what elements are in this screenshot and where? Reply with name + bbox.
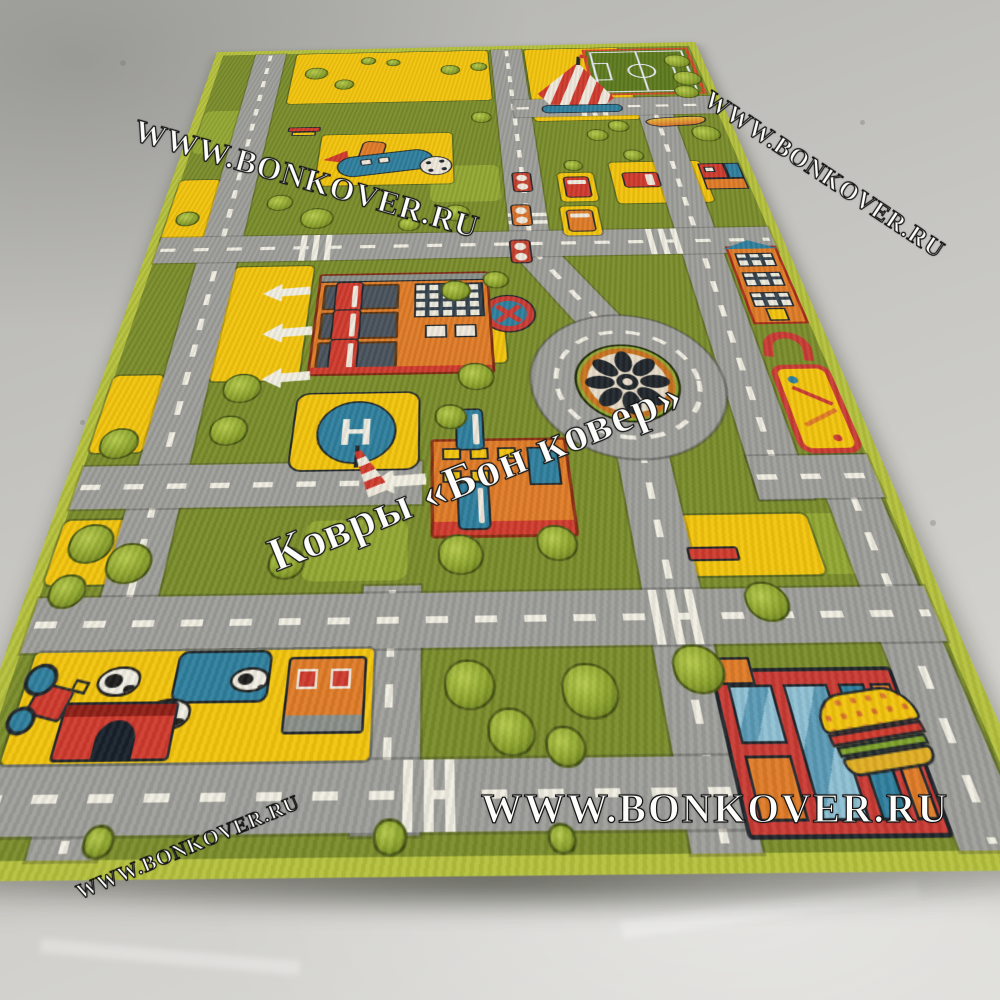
carousel-base [541,104,624,114]
school-roof [720,240,778,250]
yellow-block [678,514,826,577]
carousel-flag-icon [579,54,591,59]
bench [686,546,741,561]
window [454,324,477,337]
window [330,668,352,688]
playground-swing [804,408,838,427]
floor-speck [860,120,865,125]
window [425,324,447,337]
bench [291,132,316,136]
traffic-light-icon [509,239,534,263]
window [703,167,716,172]
school-windows [749,292,795,307]
barn-door [89,720,139,762]
school-door [765,308,790,321]
watermark-bottom-center: WWW.BONKOVER.RU [481,785,949,832]
floor-speck [120,60,126,66]
road [746,454,885,499]
playground-slide [792,386,834,406]
truck-icon [562,176,593,198]
floor-speck [80,420,85,425]
floor-paint-streak [40,939,300,976]
traffic-light-icon [511,172,534,192]
farm-house [280,656,367,735]
concrete-floor: H [0,0,1000,1000]
traffic-light-icon [510,204,534,226]
truck-icon [621,172,663,188]
window [296,669,319,689]
truck-icon [565,209,597,232]
fire-truck-icon [333,282,364,312]
cafe-window [727,684,788,744]
house-wall [703,178,750,190]
crosswalk [402,759,466,832]
fire-truck-icon [330,309,362,342]
floor-speck [930,520,936,526]
school-windows [741,272,786,287]
farm-house-base [283,715,362,732]
school-windows [734,253,777,267]
crosswalk [298,235,335,261]
